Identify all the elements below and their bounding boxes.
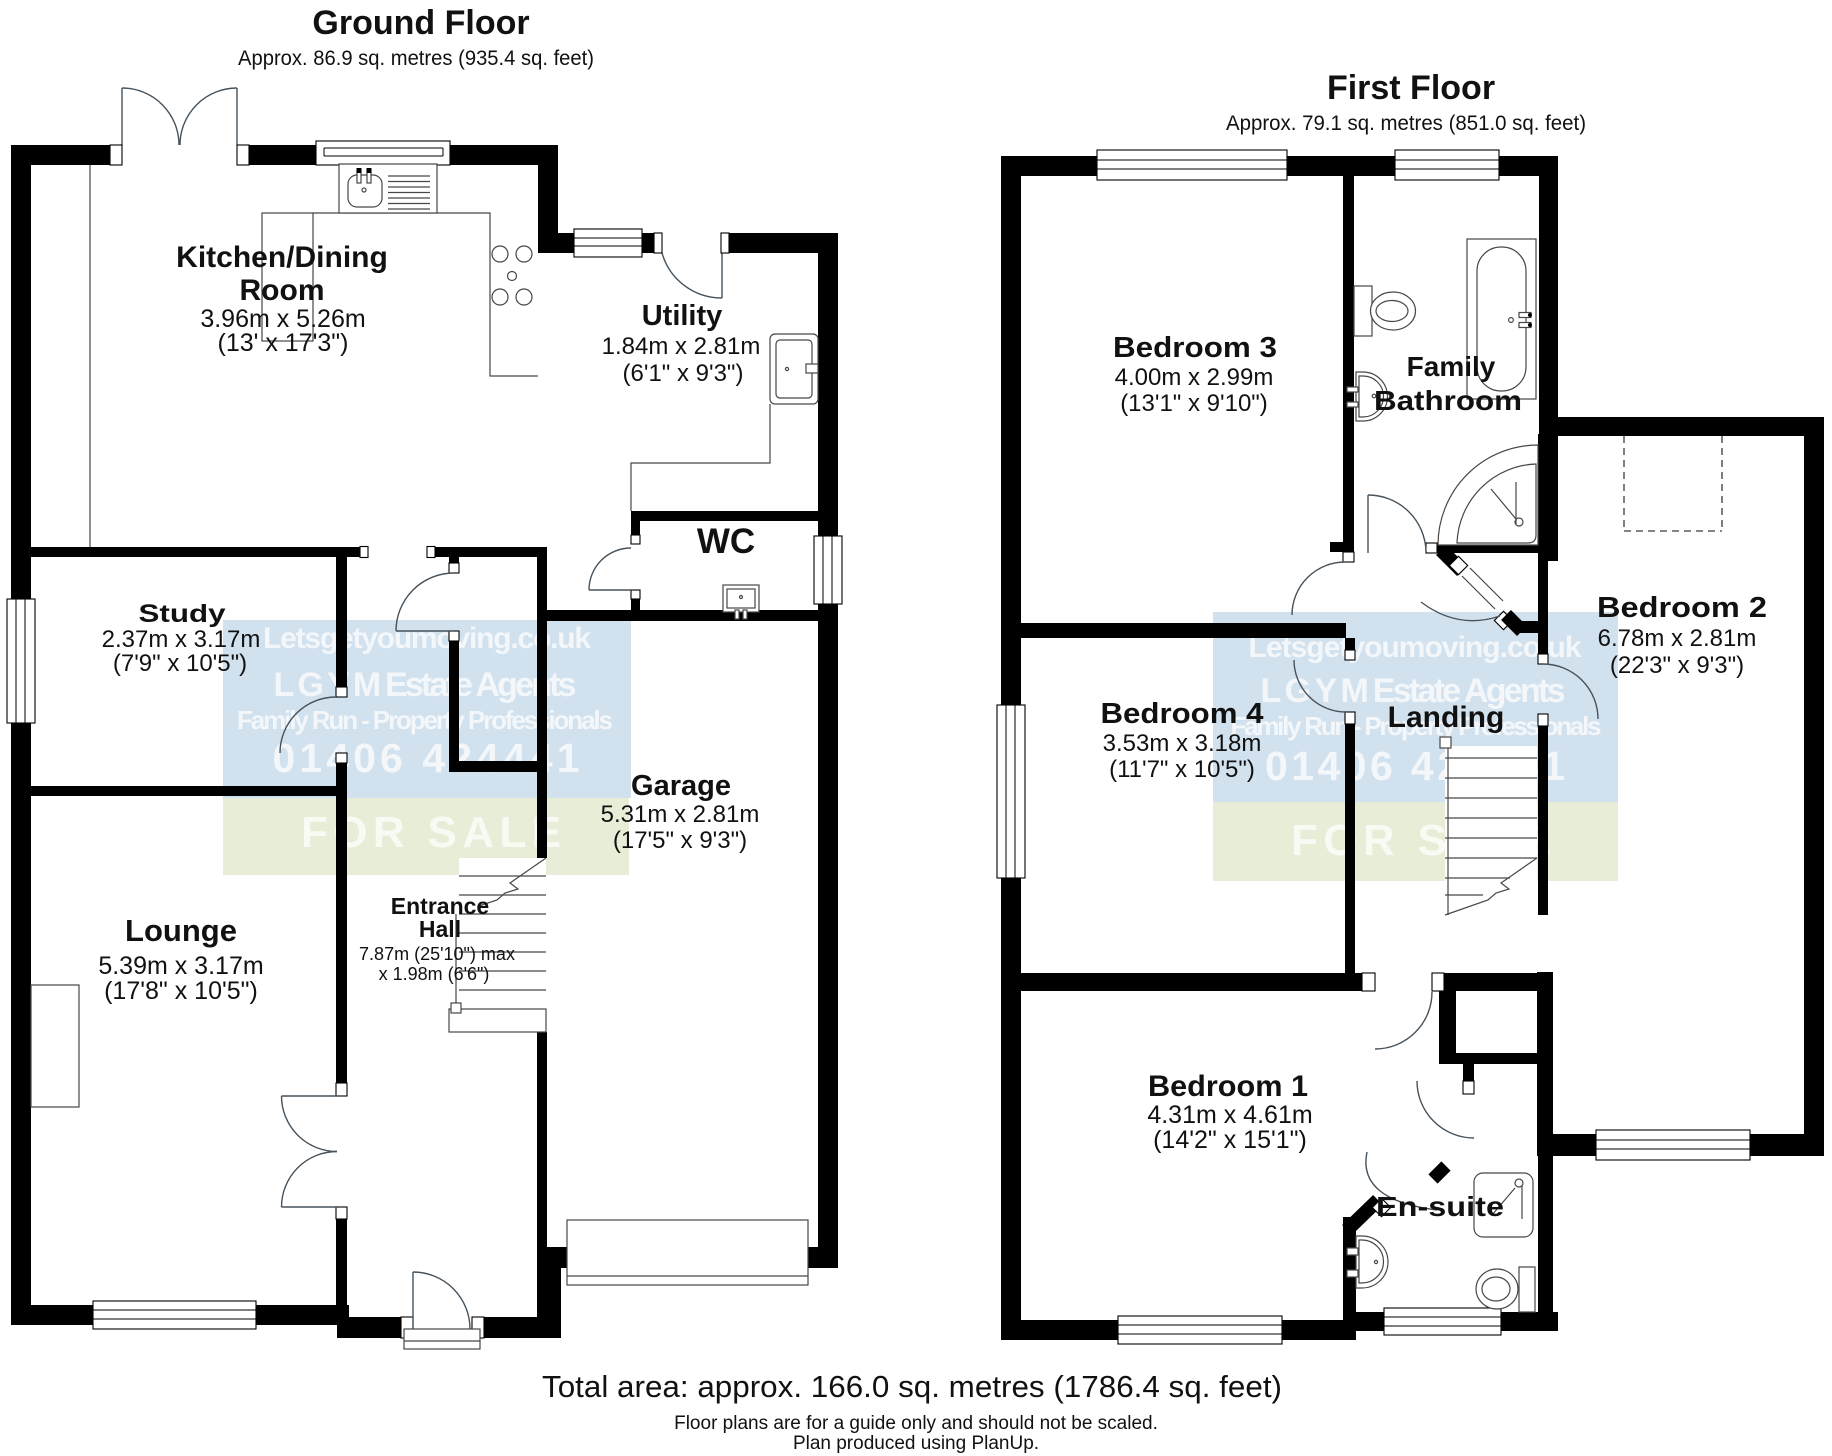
svg-text:En-suite: En-suite	[1376, 1191, 1504, 1222]
svg-text:4.31m x 4.61m: 4.31m x 4.61m	[1147, 1101, 1312, 1129]
svg-text:Plan produced using PlanUp.: Plan produced using PlanUp.	[793, 1433, 1039, 1454]
svg-text:Bedroom 1: Bedroom 1	[1148, 1070, 1308, 1103]
svg-text:Total area: approx. 166.0 sq.: Total area: approx. 166.0 sq. metres (17…	[542, 1369, 1282, 1404]
svg-text:5.31m x 2.81m: 5.31m x 2.81m	[601, 801, 760, 828]
svg-text:(7'9" x 10'5"): (7'9" x 10'5")	[113, 650, 247, 677]
svg-text:Hall: Hall	[419, 916, 461, 942]
svg-text:2.37m x 3.17m: 2.37m x 3.17m	[102, 626, 261, 653]
svg-text:Room: Room	[240, 274, 325, 307]
svg-text:Utility: Utility	[642, 300, 723, 332]
svg-text:Family Run - Property Professi: Family Run - Property Professionals	[237, 705, 613, 735]
svg-text:6.78m x 2.81m: 6.78m x 2.81m	[1598, 625, 1757, 652]
svg-text:L G Y M Estate Agents: L G Y M Estate Agents	[274, 666, 577, 704]
svg-text:(13'1" x 9'10"): (13'1" x 9'10")	[1120, 390, 1268, 417]
svg-text:WC: WC	[697, 522, 755, 561]
svg-text:1.84m x 2.81m: 1.84m x 2.81m	[602, 333, 761, 360]
svg-text:Study: Study	[139, 600, 226, 628]
svg-text:(6'1" x 9'3"): (6'1" x 9'3")	[623, 360, 744, 387]
svg-text:Approx. 86.9 sq. metres (935.4: Approx. 86.9 sq. metres (935.4 sq. feet)	[238, 47, 594, 70]
svg-text:Bathroom: Bathroom	[1374, 385, 1522, 416]
svg-text:5.39m x 3.17m: 5.39m x 3.17m	[98, 952, 263, 980]
svg-text:Bedroom 4: Bedroom 4	[1101, 698, 1264, 730]
svg-text:01406 424441: 01406 424441	[273, 735, 580, 781]
svg-text:(11'7" x 10'5"): (11'7" x 10'5")	[1109, 756, 1255, 783]
svg-text:Family: Family	[1407, 351, 1496, 382]
svg-text:(17'5" x 9'3"): (17'5" x 9'3")	[613, 827, 747, 854]
svg-text:First Floor: First Floor	[1327, 69, 1495, 107]
svg-text:(13' x 17'3"): (13' x 17'3")	[218, 329, 349, 357]
svg-text:x 1.98m (6'6"): x 1.98m (6'6")	[379, 964, 490, 984]
svg-text:7.87m (25'10") max: 7.87m (25'10") max	[359, 944, 515, 964]
svg-text:Ground Floor: Ground Floor	[312, 4, 529, 42]
svg-text:Garage: Garage	[631, 770, 731, 802]
svg-text:(14'2" x 15'1"): (14'2" x 15'1")	[1153, 1126, 1307, 1154]
svg-text:Landing: Landing	[1388, 701, 1505, 734]
svg-text:Floor plans are for a guide on: Floor plans are for a guide only and sho…	[674, 1413, 1158, 1434]
svg-text:Bedroom 3: Bedroom 3	[1113, 332, 1277, 364]
svg-text:4.00m x 2.99m: 4.00m x 2.99m	[1115, 364, 1274, 391]
svg-text:(17'8" x 10'5"): (17'8" x 10'5")	[104, 977, 258, 1005]
svg-text:3.53m x 3.18m: 3.53m x 3.18m	[1103, 730, 1262, 757]
svg-text:Approx. 79.1 sq. metres (851.0: Approx. 79.1 sq. metres (851.0 sq. feet)	[1226, 112, 1586, 135]
svg-text:(22'3" x 9'3"): (22'3" x 9'3")	[1610, 652, 1744, 679]
svg-text:Kitchen/Dining: Kitchen/Dining	[176, 241, 388, 274]
svg-text:Lounge: Lounge	[125, 913, 237, 948]
svg-text:Bedroom 2: Bedroom 2	[1597, 592, 1767, 624]
